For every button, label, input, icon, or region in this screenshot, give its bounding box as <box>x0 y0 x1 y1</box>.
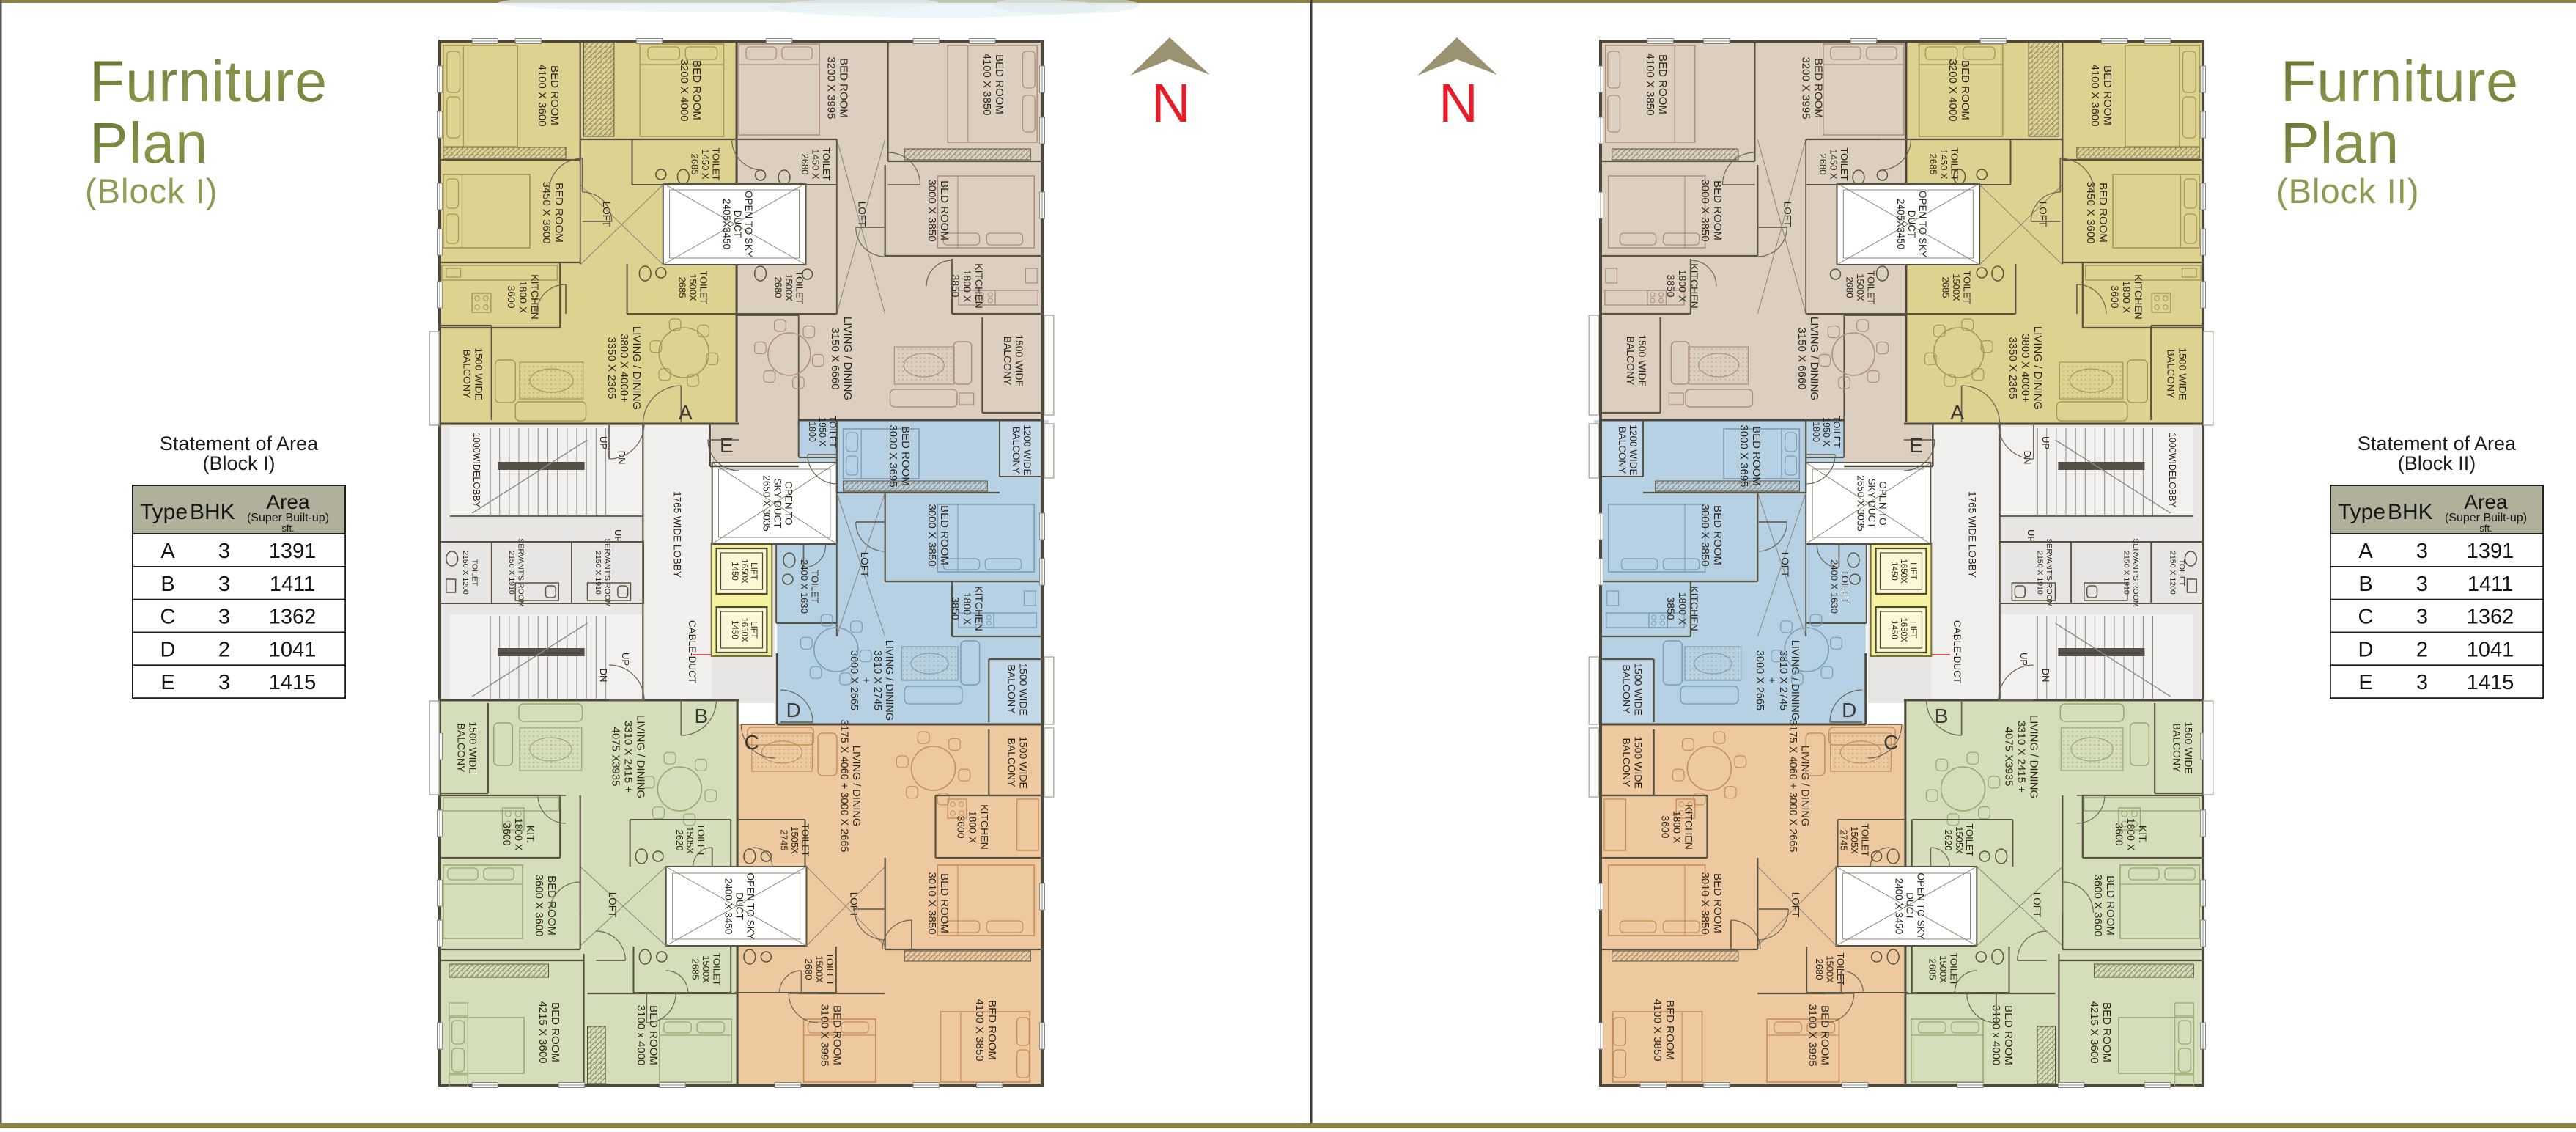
svg-text:1450: 1450 <box>1889 620 1898 639</box>
svg-text:1000WIDELOBBY: 1000WIDELOBBY <box>2167 433 2177 508</box>
svg-text:1650X: 1650X <box>739 617 748 642</box>
svg-text:1800 X: 1800 X <box>1677 592 1689 625</box>
svg-text:BED ROOM: BED ROOM <box>938 505 951 565</box>
svg-text:3200 X 3995: 3200 X 3995 <box>824 56 837 119</box>
svg-text:DN: DN <box>598 669 609 683</box>
svg-text:1800 X: 1800 X <box>513 818 525 851</box>
svg-text:OPEN TO: OPEN TO <box>783 481 794 525</box>
svg-text:3100 x 4000: 3100 x 4000 <box>635 1005 647 1066</box>
svg-text:LOFT: LOFT <box>1790 892 1801 918</box>
svg-text:E: E <box>2358 671 2372 694</box>
svg-text:1391: 1391 <box>2467 540 2514 563</box>
svg-text:1800 X: 1800 X <box>962 592 973 625</box>
svg-text:2685: 2685 <box>1940 277 1951 298</box>
svg-text:1500 WIDE: 1500 WIDE <box>1018 663 1030 716</box>
svg-text:TOILET: TOILET <box>470 559 479 587</box>
svg-text:1415: 1415 <box>2467 671 2514 694</box>
svg-text:D: D <box>1842 699 1856 721</box>
svg-text:3: 3 <box>218 606 230 629</box>
svg-text:DN: DN <box>2040 669 2051 683</box>
svg-text:3600: 3600 <box>2109 285 2121 308</box>
svg-text:LOFT: LOFT <box>2037 202 2048 227</box>
svg-text:3600 X 3600: 3600 X 3600 <box>2092 874 2104 936</box>
svg-text:3600: 3600 <box>2114 823 2125 845</box>
svg-text:2150 X 1200: 2150 X 1200 <box>2168 551 2177 595</box>
svg-text:BED ROOM: BED ROOM <box>1656 54 1669 114</box>
svg-text:4100 X 3600: 4100 X 3600 <box>2089 64 2101 126</box>
svg-text:BED ROOM: BED ROOM <box>690 60 703 120</box>
svg-text:UP: UP <box>598 436 609 449</box>
svg-text:SERVANT'S ROOM: SERVANT'S ROOM <box>2131 538 2140 606</box>
svg-text:1415: 1415 <box>269 671 317 694</box>
svg-text:BED ROOM: BED ROOM <box>1750 426 1763 486</box>
svg-text:4075 X3935: 4075 X3935 <box>2002 727 2015 787</box>
svg-text:BED ROOM: BED ROOM <box>1711 180 1724 240</box>
svg-text:1500 WIDE: 1500 WIDE <box>2183 721 2195 774</box>
svg-text:BED ROOM: BED ROOM <box>938 180 951 240</box>
svg-text:N: N <box>1439 73 1477 133</box>
svg-text:2650 X 3035: 2650 X 3035 <box>761 475 772 532</box>
svg-text:2685: 2685 <box>1928 154 1939 175</box>
svg-text:BALCONY: BALCONY <box>2171 724 2183 773</box>
svg-text:3100 X 3995: 3100 X 3995 <box>1806 1004 1819 1066</box>
svg-text:SKY DUCT: SKY DUCT <box>772 478 783 528</box>
svg-text:3310 X 2415 +: 3310 X 2415 + <box>622 721 635 793</box>
svg-text:DUCT: DUCT <box>1904 892 1915 920</box>
svg-text:BED ROOM: BED ROOM <box>1711 873 1724 933</box>
svg-text:KITCHEN: KITCHEN <box>979 804 991 849</box>
svg-text:BED ROOM: BED ROOM <box>993 54 1005 114</box>
svg-text:LOFT: LOFT <box>849 892 860 918</box>
svg-text:BALCONY: BALCONY <box>1006 738 1018 788</box>
svg-text:1800 X: 1800 X <box>1677 270 1689 303</box>
svg-text:3175 X 4060 + 3000 X 2665: 3175 X 4060 + 3000 X 2665 <box>1787 719 1798 852</box>
svg-text:1505X: 1505X <box>789 826 800 854</box>
svg-text:E: E <box>1909 434 1923 457</box>
svg-text:LIVING / DINING: LIVING / DINING <box>635 715 647 798</box>
svg-text:4100 X 3850: 4100 X 3850 <box>1644 53 1656 115</box>
svg-text:2: 2 <box>218 638 230 661</box>
svg-text:2620: 2620 <box>1943 830 1954 851</box>
svg-text:1505X: 1505X <box>684 826 695 854</box>
svg-text:BED ROOM: BED ROOM <box>2097 183 2109 243</box>
svg-text:1500X: 1500X <box>1855 273 1866 301</box>
svg-text:TOILET: TOILET <box>1949 147 1960 180</box>
svg-text:OPEN TO: OPEN TO <box>1877 481 1888 525</box>
svg-text:sft.: sft. <box>281 523 294 534</box>
svg-text:Type: Type <box>2338 500 2385 524</box>
svg-text:UP: UP <box>613 529 624 543</box>
svg-text:DUCT: DUCT <box>734 892 745 920</box>
svg-text:TOILET: TOILET <box>810 570 821 603</box>
svg-text:B: B <box>160 573 174 596</box>
svg-text:1800: 1800 <box>1811 422 1821 442</box>
svg-text:KITCHEN: KITCHEN <box>1683 804 1694 849</box>
svg-text:3200 X 3995: 3200 X 3995 <box>1800 56 1812 119</box>
svg-text:LOFT: LOFT <box>2031 892 2042 918</box>
svg-text:3200 X 4000: 3200 X 4000 <box>1946 59 1959 121</box>
svg-text:C: C <box>1883 731 1898 754</box>
svg-text:3450 X 3600: 3450 X 3600 <box>2084 181 2097 243</box>
svg-text:D: D <box>2358 638 2374 661</box>
svg-text:3175 X 4060 + 3000 X 2665: 3175 X 4060 + 3000 X 2665 <box>838 719 849 852</box>
svg-text:1411: 1411 <box>2468 573 2513 596</box>
svg-text:3000 X 3850: 3000 X 3850 <box>926 179 938 241</box>
svg-text:LIVING / DINING: LIVING / DINING <box>2031 326 2044 410</box>
svg-text:BALCONY: BALCONY <box>1625 337 1636 386</box>
svg-text:KITCHEN: KITCHEN <box>973 586 985 631</box>
svg-text:+: + <box>1765 677 1777 683</box>
svg-text:3800 X 4000+: 3800 X 4000+ <box>618 334 630 403</box>
svg-text:1505X: 1505X <box>1954 826 1965 854</box>
svg-text:LIVING / DINING: LIVING / DINING <box>2027 715 2040 798</box>
svg-text:2620: 2620 <box>674 830 685 851</box>
svg-text:Area: Area <box>2464 490 2508 513</box>
svg-text:2405X3450: 2405X3450 <box>721 199 732 249</box>
svg-text:3450 X 3600: 3450 X 3600 <box>540 181 553 243</box>
svg-text:TOILET: TOILET <box>2177 559 2186 587</box>
svg-text:LIVING / DINING: LIVING / DINING <box>630 326 643 410</box>
svg-text:3850: 3850 <box>1665 597 1677 620</box>
svg-text:3150 X 6660: 3150 X 6660 <box>829 327 841 389</box>
svg-text:3150 X 6660: 3150 X 6660 <box>1796 327 1808 389</box>
svg-text:3600: 3600 <box>506 285 517 308</box>
svg-text:TOILET: TOILET <box>698 271 709 304</box>
svg-text:2650 X 3035: 2650 X 3035 <box>1855 475 1866 532</box>
svg-text:OPEN TO SKY: OPEN TO SKY <box>1917 191 1928 257</box>
svg-text:C: C <box>160 606 176 629</box>
svg-text:LIFT: LIFT <box>1908 562 1917 580</box>
svg-text:1800 X: 1800 X <box>517 281 529 314</box>
svg-text:3000 X 3850: 3000 X 3850 <box>926 504 938 566</box>
svg-text:BED ROOM: BED ROOM <box>986 1000 998 1060</box>
svg-text:1800 X: 1800 X <box>967 811 979 844</box>
svg-text:1500 WIDE: 1500 WIDE <box>1636 334 1648 387</box>
svg-text:TOILET: TOILET <box>1866 271 1877 304</box>
svg-text:SERVANT'S ROOM: SERVANT'S ROOM <box>2045 538 2053 606</box>
svg-text:3000 X 3850: 3000 X 3850 <box>1699 504 1711 566</box>
svg-text:SERVANT'S ROOM: SERVANT'S ROOM <box>517 538 525 606</box>
svg-text:4100 X 3850: 4100 X 3850 <box>973 999 986 1061</box>
svg-text:BED ROOM: BED ROOM <box>1711 505 1724 565</box>
svg-text:2150 X 1910: 2150 X 1910 <box>2036 551 2045 595</box>
svg-text:3350 X 2365: 3350 X 2365 <box>605 337 618 399</box>
svg-text:1450 X: 1450 X <box>1828 149 1839 180</box>
svg-text:Statement of Area: Statement of Area <box>160 433 319 455</box>
svg-text:CABLE-DUCT: CABLE-DUCT <box>687 620 698 683</box>
svg-text:2745: 2745 <box>1839 830 1850 851</box>
svg-text:2685: 2685 <box>689 154 700 175</box>
svg-text:3000 X 3695: 3000 X 3695 <box>1738 425 1750 487</box>
svg-text:BED ROOM: BED ROOM <box>2002 1005 2015 1065</box>
svg-text:BALCONY: BALCONY <box>455 724 467 773</box>
svg-text:2745: 2745 <box>778 830 789 851</box>
svg-text:2150 X 1910: 2150 X 1910 <box>507 551 516 595</box>
svg-text:TOILET: TOILET <box>1839 570 1850 603</box>
svg-text:BALCONY: BALCONY <box>1011 427 1022 474</box>
svg-text:TOILET: TOILET <box>1831 416 1842 448</box>
svg-text:2680: 2680 <box>1814 959 1825 980</box>
svg-text:2685: 2685 <box>690 959 701 980</box>
svg-text:BED ROOM: BED ROOM <box>548 65 561 125</box>
svg-text:C: C <box>745 731 759 754</box>
svg-text:D: D <box>786 699 801 721</box>
svg-text:Furniture: Furniture <box>2281 48 2519 114</box>
svg-text:B: B <box>2358 573 2372 596</box>
svg-text:3: 3 <box>218 573 230 596</box>
svg-text:BALCONY: BALCONY <box>1002 337 1014 386</box>
svg-text:1800: 1800 <box>807 422 817 442</box>
svg-text:TOILET: TOILET <box>821 147 832 180</box>
svg-text:2: 2 <box>2416 638 2428 661</box>
svg-text:BED ROOM: BED ROOM <box>1664 1000 1676 1060</box>
svg-text:KITCHEN: KITCHEN <box>1689 586 1700 631</box>
svg-text:1391: 1391 <box>269 540 317 563</box>
svg-text:2680: 2680 <box>800 154 811 175</box>
svg-text:UP: UP <box>2018 653 2029 666</box>
svg-text:TOILET: TOILET <box>710 147 721 180</box>
svg-text:(Block II): (Block II) <box>2398 452 2476 474</box>
svg-text:4100 X 3850: 4100 X 3850 <box>1651 999 1664 1061</box>
svg-text:2680: 2680 <box>1845 277 1856 298</box>
svg-text:LIVING / DINING: LIVING / DINING <box>841 317 854 400</box>
svg-text:2400 X 3450: 2400 X 3450 <box>723 878 734 935</box>
svg-text:BED ROOM: BED ROOM <box>899 426 912 486</box>
svg-text:OPEN TO SKY: OPEN TO SKY <box>745 872 756 939</box>
svg-text:UP: UP <box>2026 529 2037 543</box>
svg-text:2685: 2685 <box>677 277 688 298</box>
svg-text:1650X: 1650X <box>1899 559 1908 584</box>
svg-text:1200 WIDE: 1200 WIDE <box>1628 425 1639 475</box>
svg-text:3100 X 3995: 3100 X 3995 <box>819 1004 831 1066</box>
svg-text:1500X: 1500X <box>701 955 712 983</box>
svg-text:3600: 3600 <box>956 815 967 838</box>
svg-text:SERVANT'S ROOM: SERVANT'S ROOM <box>603 538 612 606</box>
svg-text:1450 X: 1450 X <box>810 149 821 180</box>
svg-text:DUCT: DUCT <box>732 210 743 238</box>
svg-text:BALCONY: BALCONY <box>1006 665 1018 715</box>
svg-text:3000 X 2665: 3000 X 2665 <box>848 650 860 710</box>
svg-text:LIFT: LIFT <box>749 562 758 580</box>
svg-text:1800 X: 1800 X <box>2121 281 2133 314</box>
svg-text:1200 WIDE: 1200 WIDE <box>1022 425 1033 475</box>
svg-text:1500X: 1500X <box>1938 955 1949 983</box>
svg-text:3: 3 <box>2416 573 2428 596</box>
svg-text:1800 X: 1800 X <box>2125 818 2137 851</box>
svg-text:LIVING / DINING: LIVING / DINING <box>1799 746 1811 826</box>
svg-text:1450 X: 1450 X <box>700 149 711 180</box>
svg-text:1800 X: 1800 X <box>1671 811 1683 844</box>
svg-text:KIT.: KIT. <box>525 826 536 843</box>
svg-text:UP: UP <box>2040 436 2051 449</box>
svg-text:Plan: Plan <box>2281 110 2399 175</box>
svg-text:3310 X 2415 +: 3310 X 2415 + <box>2015 721 2027 793</box>
svg-text:3010 X 3850: 3010 X 3850 <box>1699 872 1711 934</box>
svg-text:KITCHEN: KITCHEN <box>2133 274 2144 319</box>
svg-text:1411: 1411 <box>270 573 315 596</box>
svg-text:Statement of Area: Statement of Area <box>2358 433 2517 455</box>
svg-text:D: D <box>160 638 176 661</box>
svg-text:BHK: BHK <box>2388 500 2433 524</box>
svg-text:3850: 3850 <box>1665 274 1677 297</box>
svg-text:BHK: BHK <box>190 500 235 524</box>
svg-text:3200 X 4000: 3200 X 4000 <box>678 59 690 121</box>
svg-text:1500 WIDE: 1500 WIDE <box>1632 736 1644 789</box>
svg-text:Type: Type <box>140 500 188 524</box>
svg-text:3000 X 3850: 3000 X 3850 <box>1699 179 1711 241</box>
svg-text:TOILET: TOILET <box>695 823 706 856</box>
svg-text:BED ROOM: BED ROOM <box>553 183 565 243</box>
svg-text:1450: 1450 <box>730 620 739 639</box>
svg-text:A: A <box>679 401 693 424</box>
svg-text:BED ROOM: BED ROOM <box>545 875 558 936</box>
svg-text:1765 WIDE LOBBY: 1765 WIDE LOBBY <box>672 491 683 578</box>
svg-text:BED ROOM: BED ROOM <box>647 1005 660 1065</box>
svg-text:2680: 2680 <box>803 959 814 980</box>
svg-text:3: 3 <box>218 671 230 694</box>
svg-text:E: E <box>720 434 734 457</box>
svg-text:1041: 1041 <box>2467 638 2514 661</box>
svg-text:LIVING / DINING: LIVING / DINING <box>883 640 895 721</box>
svg-text:1505X: 1505X <box>1849 826 1860 854</box>
svg-text:3600: 3600 <box>501 823 513 845</box>
svg-text:LIVING / DINING: LIVING / DINING <box>1789 640 1801 721</box>
svg-text:1650X: 1650X <box>739 559 748 584</box>
svg-text:TOILET: TOILET <box>800 823 811 856</box>
svg-text:Plan: Plan <box>89 110 208 175</box>
svg-text:A: A <box>1950 401 1964 424</box>
svg-text:3600 X 3600: 3600 X 3600 <box>533 874 545 936</box>
svg-text:KITCHEN: KITCHEN <box>529 274 541 319</box>
svg-text:3850: 3850 <box>950 597 962 620</box>
svg-text:UP: UP <box>620 653 631 666</box>
svg-text:3: 3 <box>2416 671 2428 694</box>
svg-text:TOILET: TOILET <box>1964 823 1975 856</box>
svg-text:4215 X 3600: 4215 X 3600 <box>2088 1001 2100 1063</box>
svg-text:LOFT: LOFT <box>1779 552 1790 578</box>
svg-text:2150 X 1910: 2150 X 1910 <box>2122 551 2131 595</box>
svg-text:1765 WIDE LOBBY: 1765 WIDE LOBBY <box>1966 491 1977 578</box>
svg-text:LIVING / DINING: LIVING / DINING <box>850 746 862 826</box>
svg-text:1500 WIDE: 1500 WIDE <box>1018 736 1030 789</box>
svg-text:TOILET: TOILET <box>794 271 805 304</box>
svg-text:BED ROOM: BED ROOM <box>2104 875 2116 936</box>
svg-text:sft.: sft. <box>2479 523 2492 534</box>
svg-text:TOILET: TOILET <box>711 952 722 985</box>
svg-text:B: B <box>1935 705 1949 727</box>
svg-text:SKY DUCT: SKY DUCT <box>1866 478 1877 528</box>
svg-text:1362: 1362 <box>2467 606 2514 629</box>
svg-text:KITCHEN: KITCHEN <box>973 263 985 308</box>
svg-text:3000 X 3695: 3000 X 3695 <box>887 425 899 487</box>
svg-text:1950 X: 1950 X <box>817 417 827 446</box>
svg-text:BED ROOM: BED ROOM <box>2100 1002 2113 1062</box>
svg-text:2680: 2680 <box>1817 154 1828 175</box>
svg-text:BALCONY: BALCONY <box>2166 350 2177 400</box>
svg-text:(Block II): (Block II) <box>2276 172 2419 210</box>
svg-text:1500X: 1500X <box>1951 273 1962 301</box>
svg-text:TOILET: TOILET <box>1860 823 1871 856</box>
svg-text:LOFT: LOFT <box>1782 202 1793 227</box>
svg-text:1500 WIDE: 1500 WIDE <box>473 348 484 400</box>
svg-text:2400 X 3450: 2400 X 3450 <box>1893 878 1904 935</box>
svg-text:1362: 1362 <box>269 606 317 629</box>
svg-text:(Block I): (Block I) <box>85 172 218 210</box>
svg-text:TOILET: TOILET <box>824 952 835 985</box>
svg-text:1950 X: 1950 X <box>1821 417 1831 446</box>
svg-text:BALCONY: BALCONY <box>1617 427 1628 474</box>
svg-text:4100 X 3600: 4100 X 3600 <box>536 64 548 126</box>
svg-text:2685: 2685 <box>1927 959 1938 980</box>
svg-text:3810 X 2745: 3810 X 2745 <box>871 650 883 710</box>
svg-text:2405X3450: 2405X3450 <box>1895 199 1906 249</box>
svg-text:N: N <box>1151 73 1190 133</box>
svg-text:4100 X 3850: 4100 X 3850 <box>981 53 993 115</box>
svg-text:LIFT: LIFT <box>1908 621 1917 639</box>
svg-text:OPEN TO SKY: OPEN TO SKY <box>1915 872 1926 939</box>
svg-text:2150 X 1200: 2150 X 1200 <box>461 551 470 595</box>
svg-text:BED ROOM: BED ROOM <box>549 1002 561 1062</box>
svg-text:3000 X 2665: 3000 X 2665 <box>1754 650 1765 710</box>
svg-text:BED ROOM: BED ROOM <box>1812 58 1825 118</box>
svg-text:BED ROOM: BED ROOM <box>2101 65 2114 125</box>
svg-text:1500 WIDE: 1500 WIDE <box>2177 348 2189 400</box>
svg-text:1500X: 1500X <box>1825 955 1836 983</box>
svg-text:1500 WIDE: 1500 WIDE <box>1632 663 1644 716</box>
svg-text:1500 WIDE: 1500 WIDE <box>467 721 479 774</box>
svg-text:OPEN TO SKY: OPEN TO SKY <box>743 191 754 257</box>
svg-text:LIFT: LIFT <box>749 621 758 639</box>
svg-text:4215 X 3600: 4215 X 3600 <box>536 1001 549 1063</box>
svg-text:C: C <box>2358 606 2374 629</box>
svg-text:DUCT: DUCT <box>1906 210 1917 238</box>
svg-text:1450 X: 1450 X <box>1938 149 1949 180</box>
svg-text:1650X: 1650X <box>1899 617 1908 642</box>
svg-text:1000WIDELOBBY: 1000WIDELOBBY <box>471 433 481 508</box>
svg-text:1450: 1450 <box>730 562 739 581</box>
svg-text:3: 3 <box>2416 606 2428 629</box>
svg-text:BED ROOM: BED ROOM <box>837 58 849 118</box>
svg-text:LOFT: LOFT <box>856 202 867 227</box>
svg-text:3350 X 2365: 3350 X 2365 <box>2007 337 2019 399</box>
svg-text:1041: 1041 <box>269 638 317 661</box>
svg-text:1500X: 1500X <box>687 273 698 301</box>
svg-text:BED ROOM: BED ROOM <box>938 873 951 933</box>
svg-text:1800 X: 1800 X <box>962 270 973 303</box>
svg-text:3600: 3600 <box>1659 815 1671 838</box>
svg-text:BALCONY: BALCONY <box>1620 738 1632 788</box>
svg-text:KIT.: KIT. <box>2137 826 2149 843</box>
svg-text:CABLE-DUCT: CABLE-DUCT <box>1952 620 1963 683</box>
svg-text:BED ROOM: BED ROOM <box>1959 60 1971 120</box>
svg-text:B: B <box>695 705 709 727</box>
svg-text:2150 X 1910: 2150 X 1910 <box>594 551 602 595</box>
svg-text:3: 3 <box>218 540 230 563</box>
svg-text:2680: 2680 <box>773 277 784 298</box>
svg-text:LOFT: LOFT <box>859 552 870 578</box>
svg-text:BALCONY: BALCONY <box>461 350 473 400</box>
svg-text:3800 X 4000+: 3800 X 4000+ <box>2019 334 2031 403</box>
svg-text:TOILET: TOILET <box>1961 271 1972 304</box>
svg-text:1450: 1450 <box>1889 562 1898 581</box>
svg-text:Area: Area <box>266 490 310 513</box>
svg-text:LOFT: LOFT <box>607 892 618 918</box>
svg-text:BED ROOM: BED ROOM <box>1819 1005 1831 1065</box>
svg-text:A: A <box>2358 540 2373 563</box>
svg-text:Furniture: Furniture <box>89 48 328 114</box>
svg-text:4075 X3935: 4075 X3935 <box>610 727 622 787</box>
svg-text:3: 3 <box>2416 540 2428 563</box>
